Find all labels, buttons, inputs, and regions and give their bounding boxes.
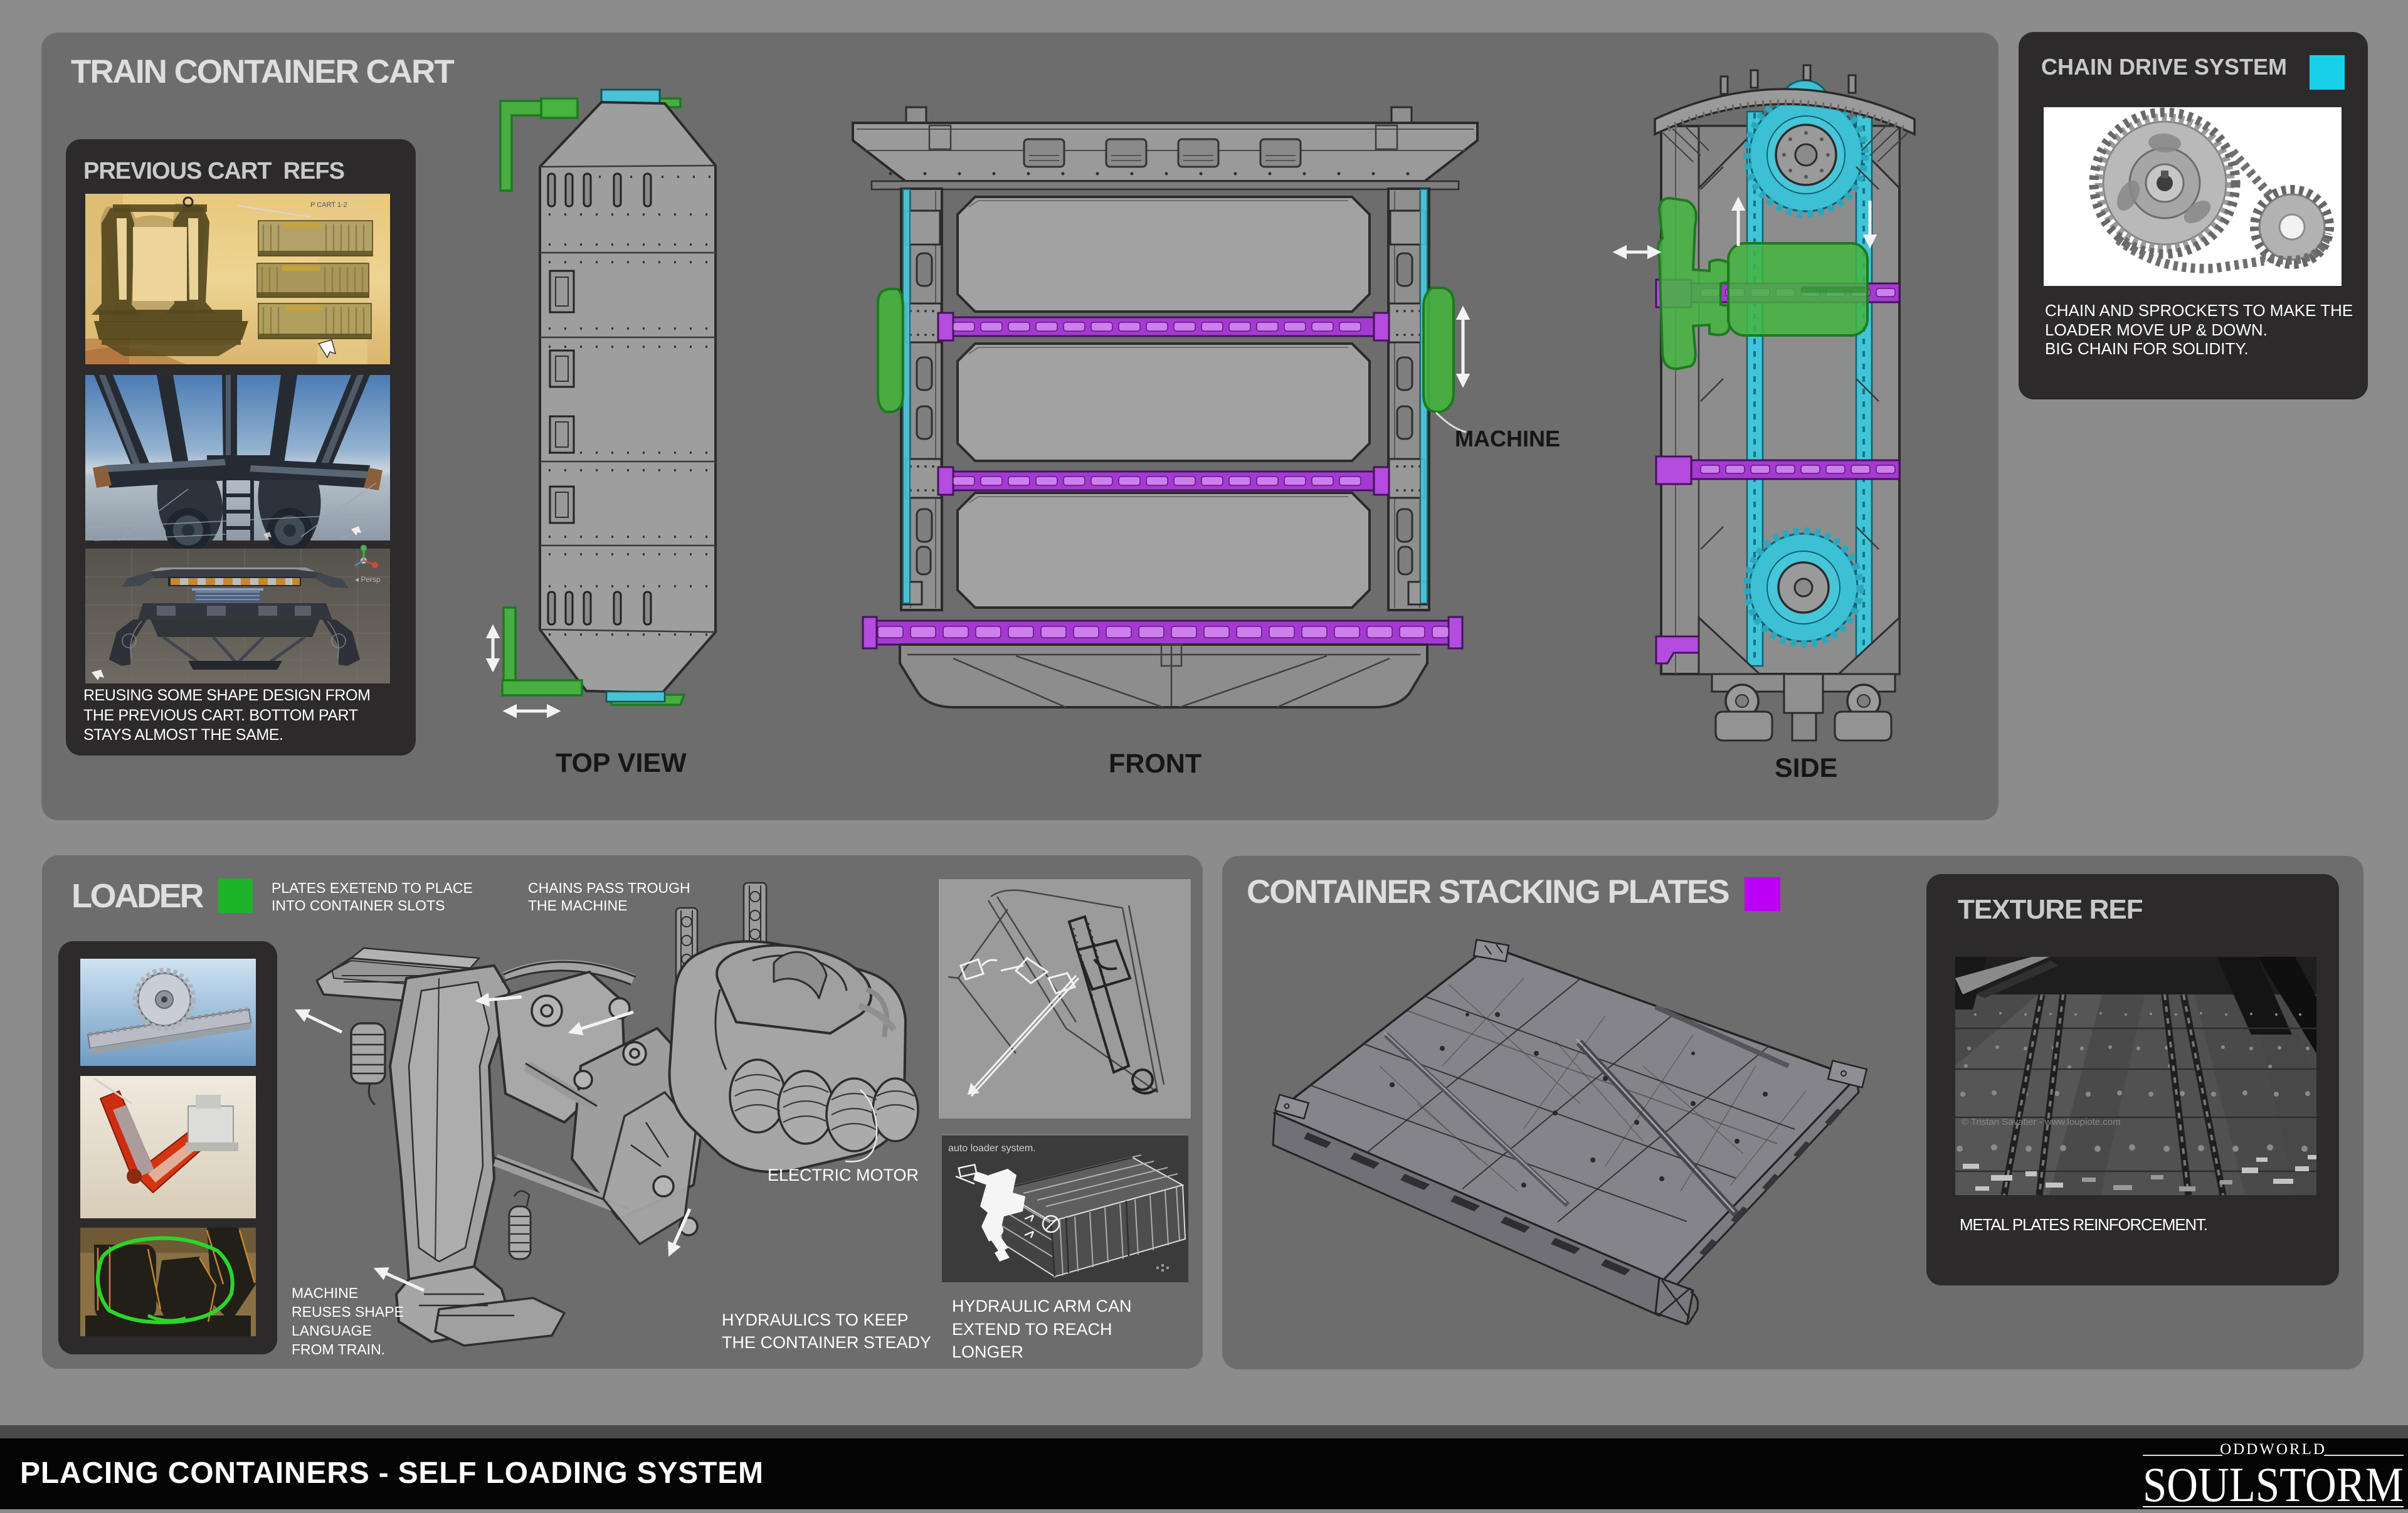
svg-text:© Tristan Savatier - www.loupi: © Tristan Savatier - www.loupiote.com: [1962, 1117, 2121, 1127]
svg-text:P CART 1-2: P CART 1-2: [310, 201, 347, 209]
svg-text:◂ Persp: ◂ Persp: [355, 575, 381, 584]
svg-text:auto loader system.: auto loader system.: [948, 1143, 1036, 1154]
